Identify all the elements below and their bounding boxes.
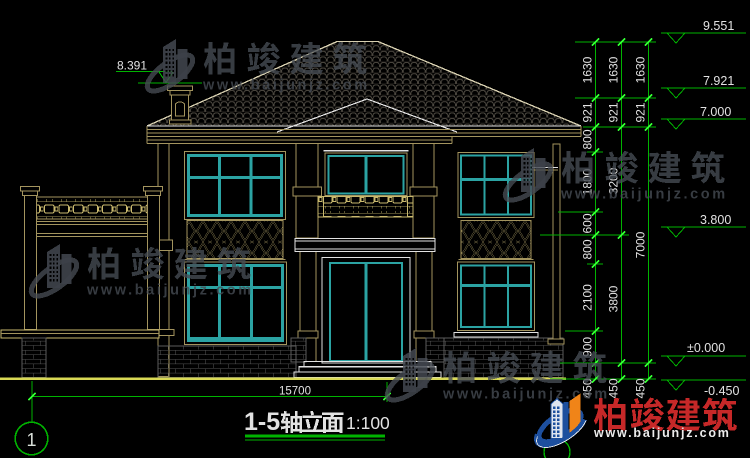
svg-text:15700: 15700 <box>279 386 311 398</box>
svg-text:1-5: 1-5 <box>244 408 280 436</box>
svg-text:3.800: 3.800 <box>700 213 731 227</box>
svg-text:600: 600 <box>581 213 595 233</box>
svg-text:921: 921 <box>581 102 595 122</box>
svg-text:1630: 1630 <box>607 56 621 83</box>
svg-text:1: 1 <box>26 430 36 450</box>
svg-text:800: 800 <box>581 129 595 149</box>
svg-text:7.921: 7.921 <box>703 74 734 88</box>
svg-text:3800: 3800 <box>607 285 621 312</box>
svg-text:www.baijunjz.com: www.baijunjz.com <box>560 187 728 203</box>
svg-text:800: 800 <box>581 239 595 259</box>
svg-text:www.baijunjz.com: www.baijunjz.com <box>202 78 370 94</box>
svg-text:8.391: 8.391 <box>117 59 147 73</box>
svg-text:1:100: 1:100 <box>346 413 390 433</box>
svg-text:www.baijunjz.com: www.baijunjz.com <box>86 283 254 299</box>
svg-text:450: 450 <box>634 378 648 398</box>
svg-text:9.551: 9.551 <box>703 19 734 33</box>
svg-text:7000: 7000 <box>634 231 648 258</box>
svg-text:www.baijunjz.com: www.baijunjz.com <box>442 387 610 403</box>
svg-text:921: 921 <box>607 102 621 122</box>
svg-text:2100: 2100 <box>581 284 595 311</box>
svg-text:921: 921 <box>634 102 648 122</box>
svg-text:1630: 1630 <box>634 56 648 83</box>
svg-text:1630: 1630 <box>581 56 595 83</box>
svg-text:±0.000: ±0.000 <box>687 341 725 355</box>
svg-text:7.000: 7.000 <box>700 105 731 119</box>
svg-text:www.baijunjz.com: www.baijunjz.com <box>593 426 731 440</box>
svg-text:-0.450: -0.450 <box>704 384 739 398</box>
